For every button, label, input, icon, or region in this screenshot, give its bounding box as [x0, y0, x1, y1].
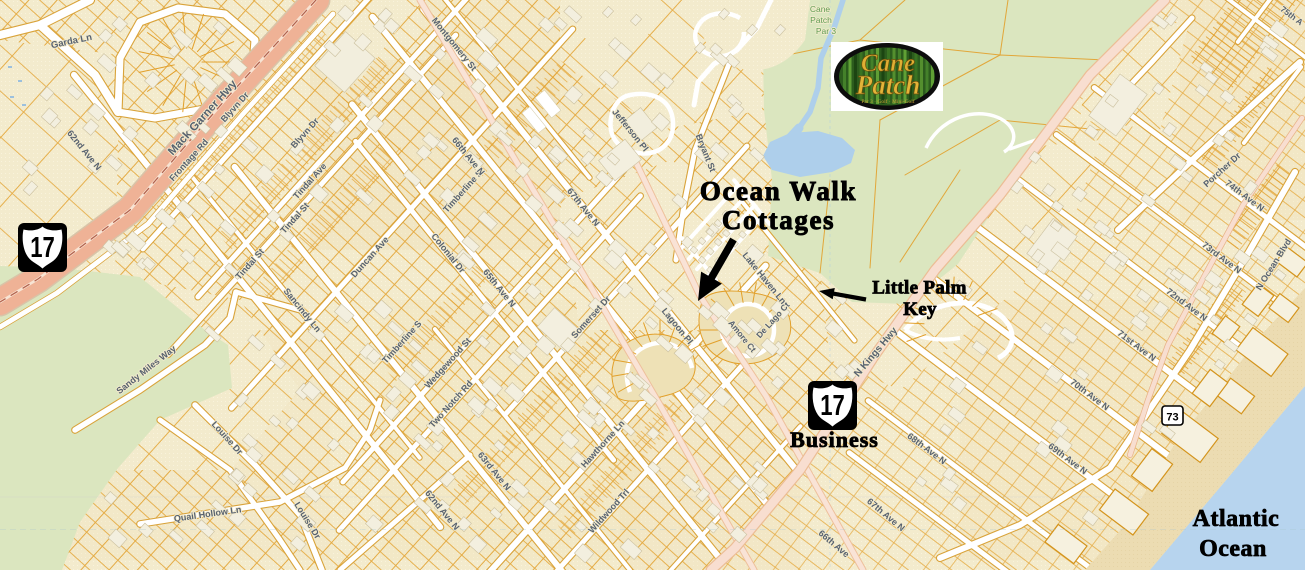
- svg-text:73: 73: [1166, 412, 1178, 424]
- svg-text:Atlantic: Atlantic: [1193, 506, 1280, 532]
- svg-text:Patch: Patch: [855, 70, 921, 100]
- svg-text:Cane: Cane: [810, 4, 831, 14]
- svg-text:Cottages: Cottages: [722, 205, 835, 235]
- svg-text:Little Palm: Little Palm: [872, 278, 967, 299]
- svg-text:17: 17: [820, 390, 845, 422]
- svg-text:Ocean: Ocean: [1199, 536, 1267, 562]
- svg-text:Par 3 · Golf · Mini-Golf: Par 3 · Golf · Mini-Golf: [861, 98, 914, 105]
- svg-text:Key: Key: [903, 299, 937, 320]
- svg-text:Ocean Walk: Ocean Walk: [700, 176, 857, 206]
- svg-text:Patch: Patch: [810, 15, 832, 25]
- svg-text:Business: Business: [790, 427, 879, 452]
- svg-text:17: 17: [30, 232, 55, 264]
- svg-text:Par 3: Par 3: [816, 26, 837, 36]
